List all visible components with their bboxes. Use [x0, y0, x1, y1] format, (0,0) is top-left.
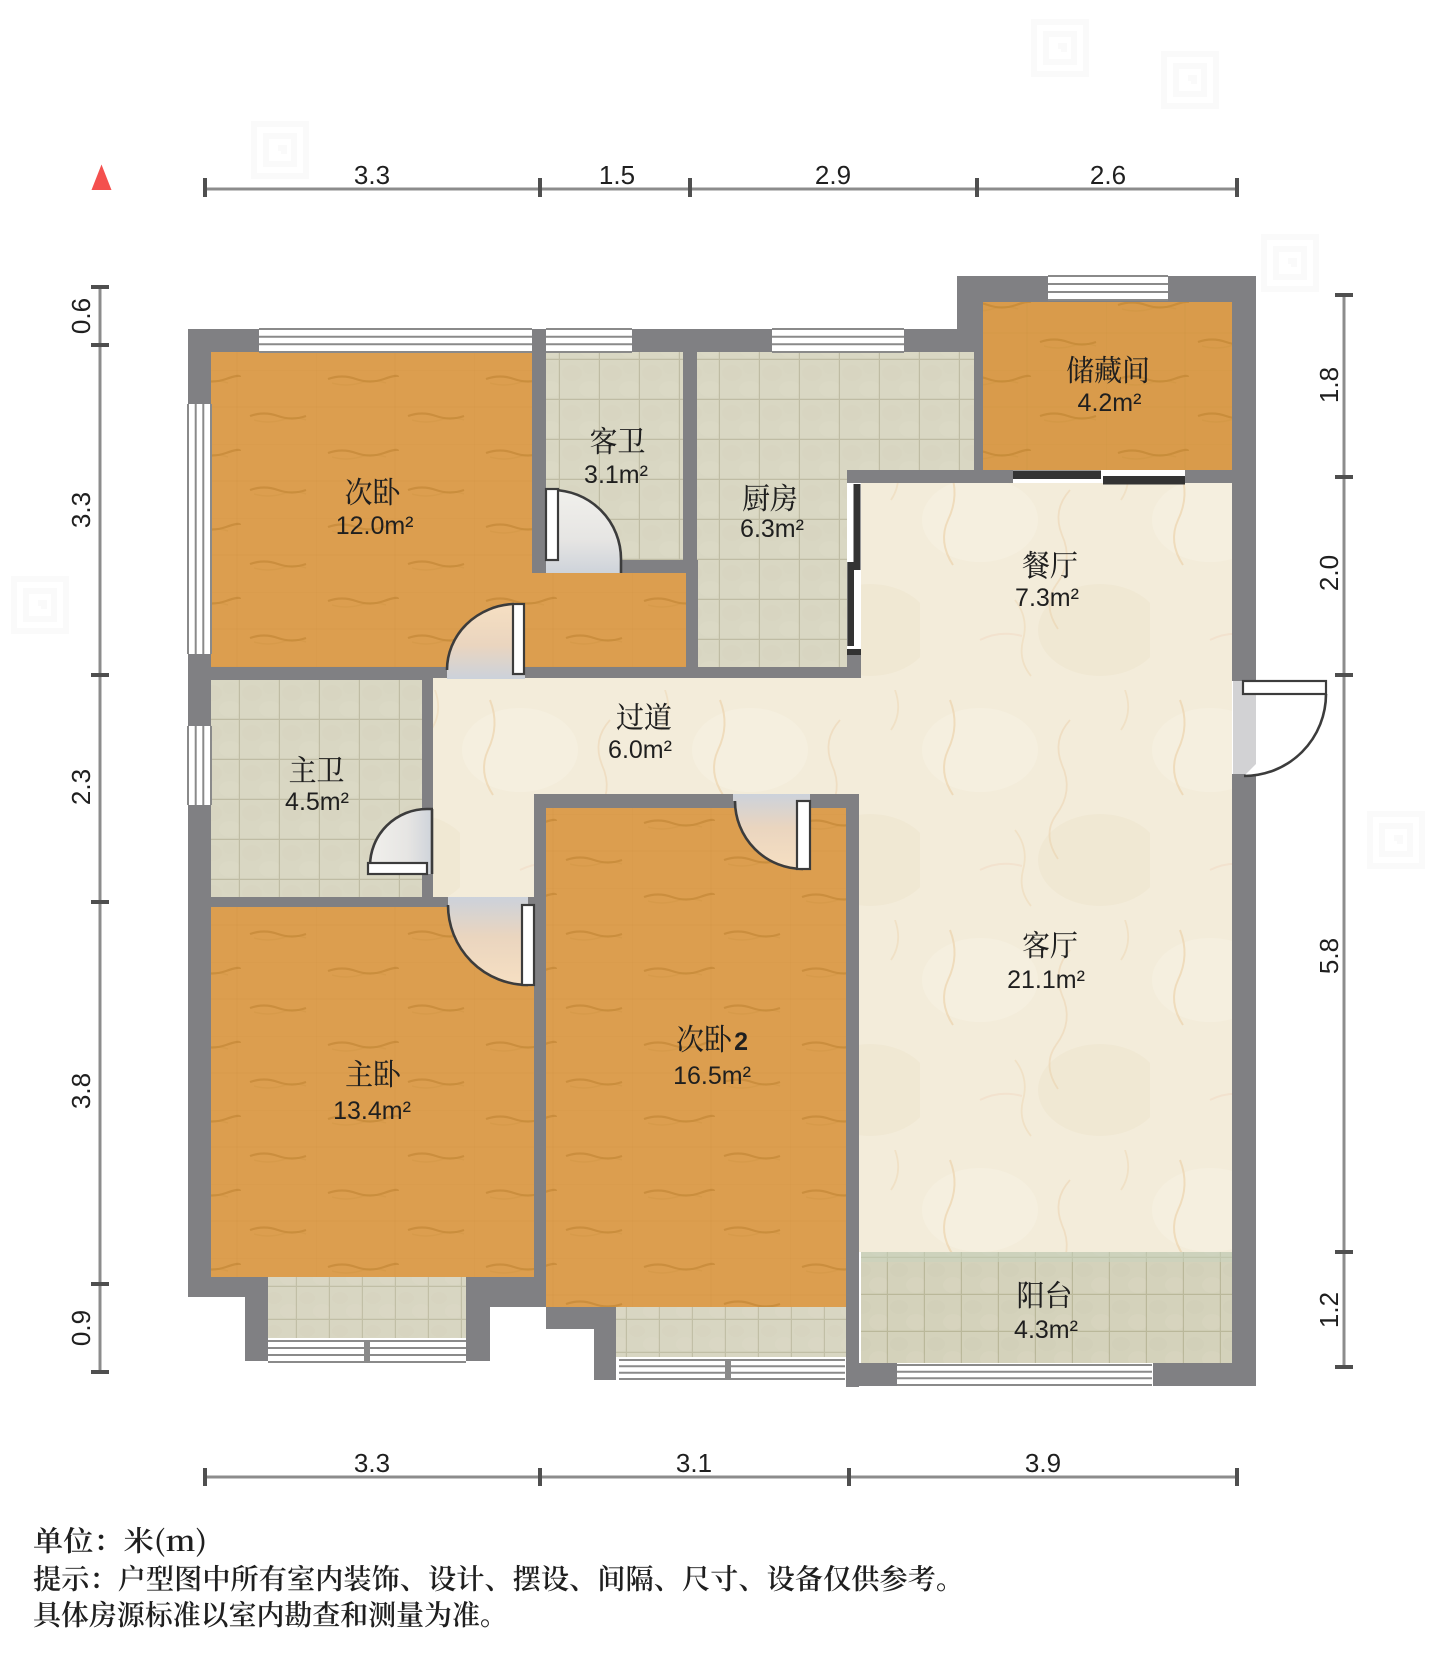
svg-text:3.3: 3.3 — [354, 160, 390, 190]
svg-text:4.2m²: 4.2m² — [1078, 389, 1142, 417]
svg-text:2.0: 2.0 — [1314, 555, 1344, 591]
svg-text:4.5m²: 4.5m² — [285, 788, 349, 816]
svg-text:1.5: 1.5 — [599, 160, 635, 190]
svg-text:0.6: 0.6 — [66, 298, 96, 334]
svg-text:3.9: 3.9 — [1025, 1448, 1061, 1478]
svg-text:6.3m²: 6.3m² — [740, 515, 804, 543]
svg-text:3.3: 3.3 — [354, 1448, 390, 1478]
svg-text:16.5m²: 16.5m² — [673, 1062, 751, 1090]
svg-text:2.3: 2.3 — [66, 769, 96, 805]
svg-text:21.1m²: 21.1m² — [1007, 966, 1085, 994]
svg-text:3.8: 3.8 — [66, 1073, 96, 1109]
svg-text:1.2: 1.2 — [1314, 1292, 1344, 1328]
svg-text:3.3: 3.3 — [66, 492, 96, 528]
svg-text:3.1m²: 3.1m² — [584, 461, 648, 489]
svg-text:13.4m²: 13.4m² — [333, 1097, 411, 1125]
svg-text:7.3m²: 7.3m² — [1015, 584, 1079, 612]
svg-text:2.9: 2.9 — [815, 160, 851, 190]
svg-text:3.1: 3.1 — [676, 1448, 712, 1478]
svg-text:5.8: 5.8 — [1314, 938, 1344, 974]
svg-text:1.8: 1.8 — [1314, 367, 1344, 403]
svg-text:4.3m²: 4.3m² — [1014, 1316, 1078, 1344]
svg-text:2.6: 2.6 — [1090, 160, 1126, 190]
svg-text:6.0m²: 6.0m² — [608, 736, 672, 764]
svg-text:12.0m²: 12.0m² — [336, 512, 414, 540]
svg-text:2: 2 — [734, 1028, 748, 1056]
svg-text:0.9: 0.9 — [66, 1310, 96, 1346]
